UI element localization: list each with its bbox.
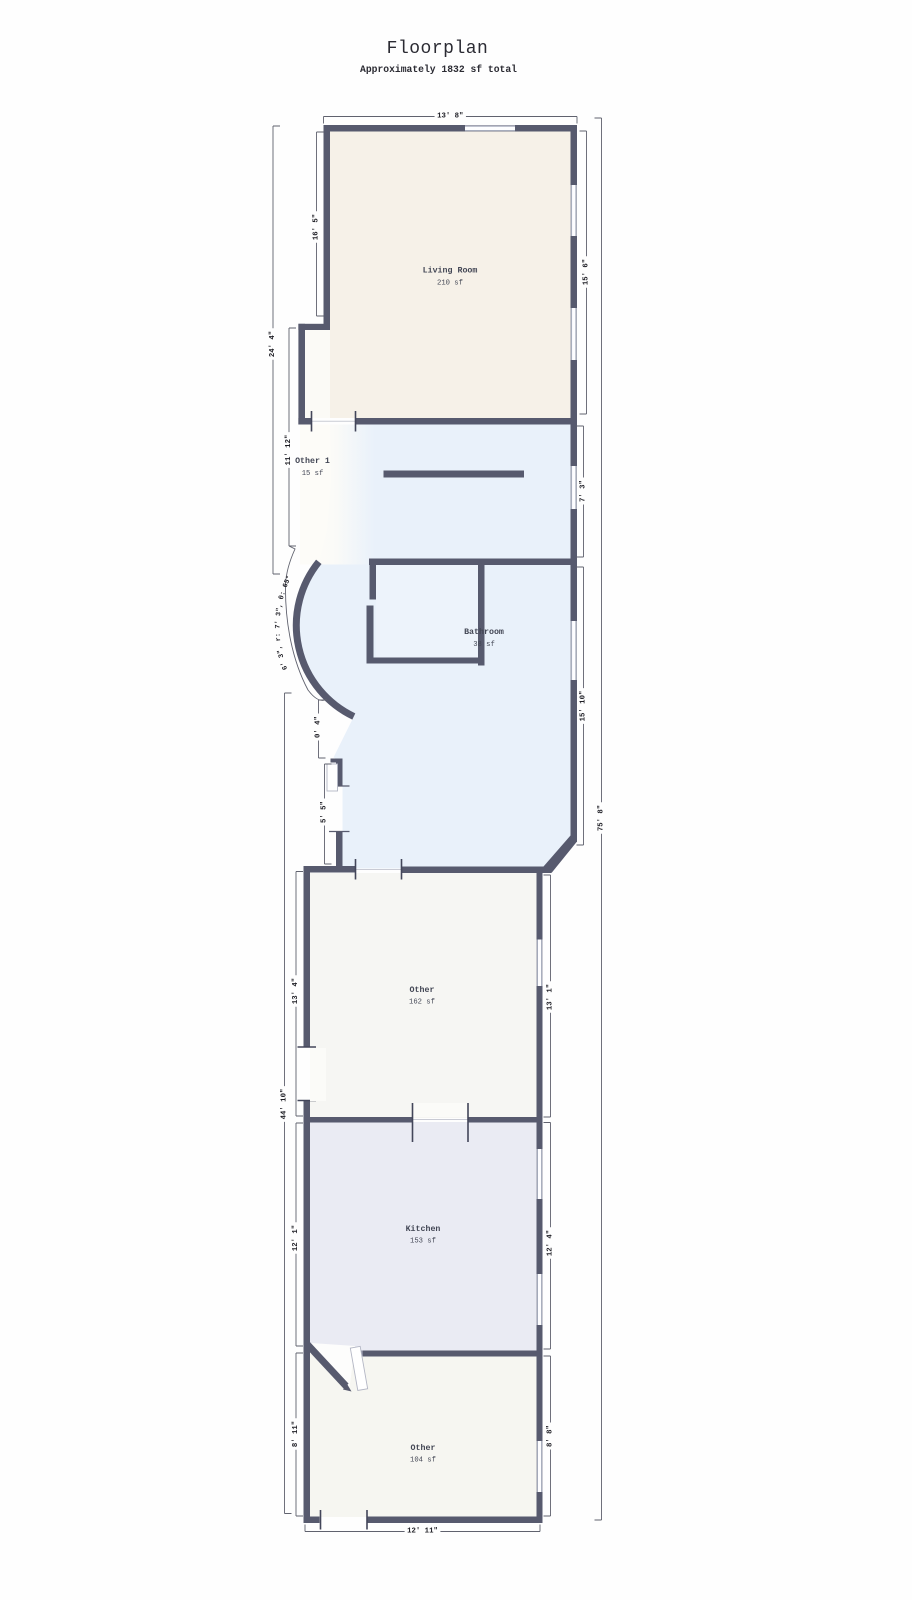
svg-text:16' 5": 16' 5": [313, 214, 321, 240]
svg-text:Other 1: Other 1: [295, 456, 330, 466]
svg-text:38 sf: 38 sf: [473, 641, 495, 649]
svg-text:104 sf: 104 sf: [410, 1457, 436, 1465]
svg-text:15' 6": 15' 6": [583, 259, 591, 285]
svg-text:Living Room: Living Room: [423, 266, 478, 276]
svg-text:162 sf: 162 sf: [409, 999, 435, 1007]
svg-text:0' 4": 0' 4": [315, 716, 323, 738]
svg-text:13' 4": 13' 4": [292, 978, 300, 1004]
svg-text:44' 10": 44' 10": [281, 1089, 289, 1120]
svg-text:13' 8": 13' 8": [437, 113, 463, 121]
svg-text:12' 1": 12' 1": [292, 1225, 300, 1251]
svg-text:8' 8": 8' 8": [547, 1425, 555, 1447]
svg-text:5' 5": 5' 5": [321, 801, 329, 823]
svg-text:15' 10": 15' 10": [580, 691, 588, 722]
svg-text:Bathroom: Bathroom: [464, 627, 504, 637]
svg-text:Other: Other: [411, 1443, 436, 1453]
svg-text:Kitchen: Kitchen: [406, 1224, 441, 1234]
svg-text:153 sf: 153 sf: [410, 1238, 436, 1246]
svg-text:7' 3": 7' 3": [580, 480, 588, 502]
svg-text:12' 11": 12' 11": [407, 1528, 438, 1536]
svg-text:75' 8": 75' 8": [598, 805, 606, 831]
svg-text:Other: Other: [410, 985, 435, 995]
svg-text:15 sf: 15 sf: [302, 470, 324, 478]
svg-text:8' 11": 8' 11": [292, 1421, 300, 1447]
svg-text:210 sf: 210 sf: [437, 280, 463, 288]
svg-text:12' 4": 12' 4": [547, 1230, 555, 1256]
svg-text:11' 12": 11' 12": [285, 435, 293, 466]
svg-text:24' 4": 24' 4": [269, 331, 277, 357]
svg-text:13' 1": 13' 1": [547, 984, 555, 1010]
